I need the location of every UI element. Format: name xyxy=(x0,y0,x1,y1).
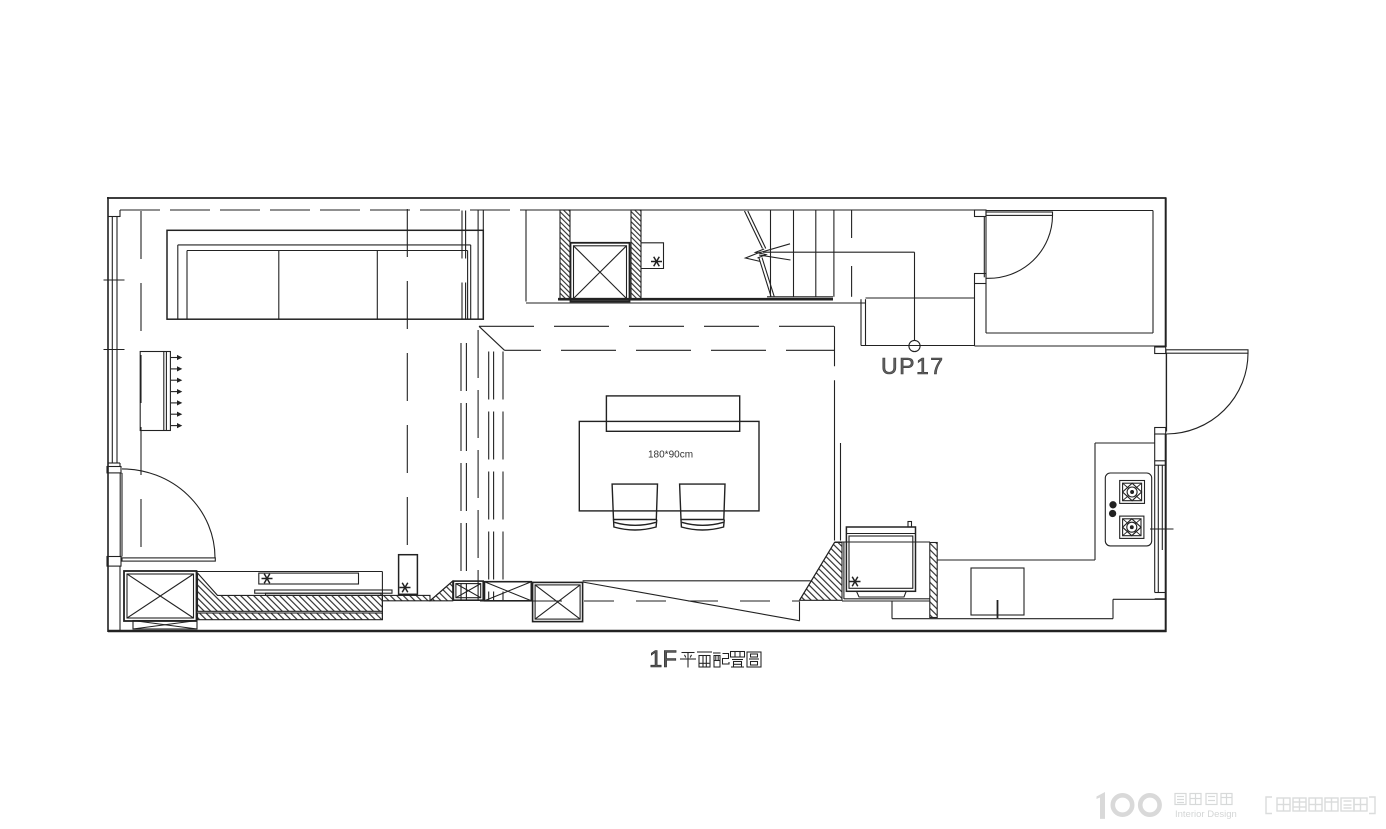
svg-text:1F: 1F xyxy=(649,646,677,673)
svg-text:UP17: UP17 xyxy=(881,353,945,379)
svg-text:180*90cm: 180*90cm xyxy=(648,450,693,461)
svg-text:Interior Design: Interior Design xyxy=(1175,809,1237,820)
